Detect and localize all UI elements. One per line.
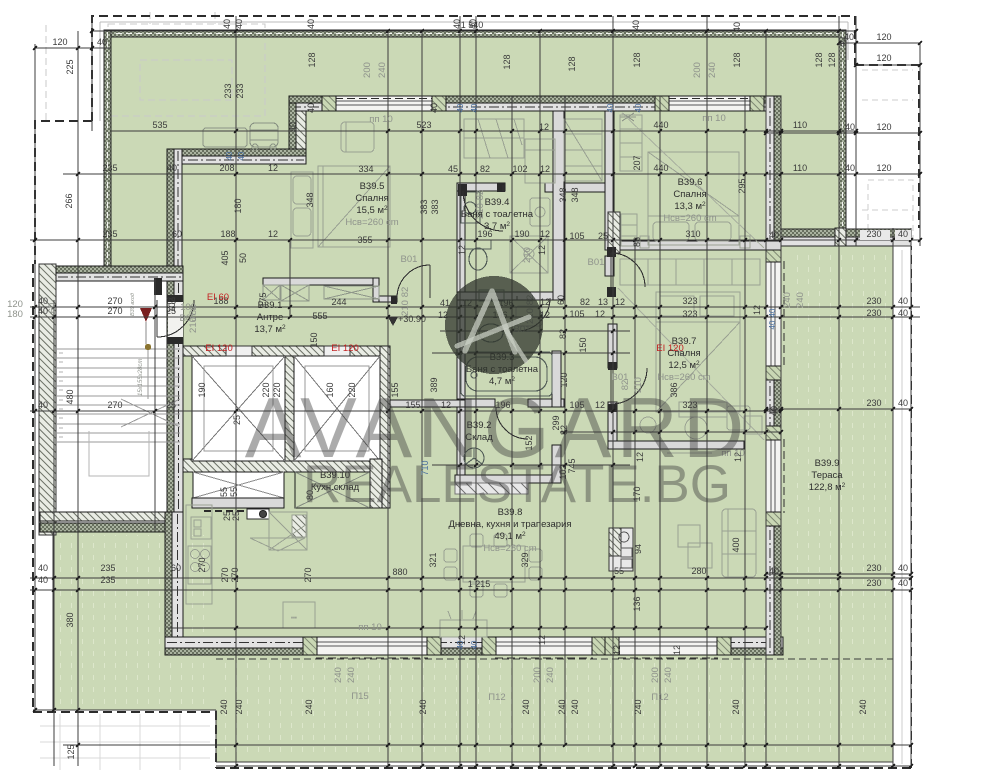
svg-text:40: 40 [898,308,908,318]
svg-text:15,5 м2: 15,5 м2 [356,205,388,217]
svg-text:40: 40 [288,122,298,132]
svg-text:40: 40 [225,151,234,160]
svg-text:Нсв=260 cm: Нсв=260 cm [483,543,536,554]
svg-text:Антре: Антре [257,312,284,323]
svg-text:40: 40 [468,19,478,29]
svg-text:12: 12 [540,229,550,239]
svg-text:40: 40 [456,103,465,112]
svg-text:240: 240 [570,699,580,714]
svg-text:40: 40 [732,22,742,32]
svg-text:120: 120 [876,163,891,173]
svg-text:25: 25 [232,415,242,425]
svg-text:233: 233 [223,83,233,98]
svg-text:295: 295 [737,178,747,193]
svg-text:348: 348 [558,187,568,202]
svg-text:244: 244 [331,297,346,307]
svg-text:40: 40 [452,19,462,29]
svg-text:B39.4: B39.4 [485,197,510,208]
svg-text:12: 12 [672,645,682,655]
svg-text:240: 240 [557,699,567,714]
svg-text:пп 10: пп 10 [358,622,382,633]
svg-text:240: 240 [707,62,718,78]
svg-text:240: 240 [377,62,388,78]
svg-text:15x155x28cm: 15x155x28cm [138,359,144,396]
svg-text:82: 82 [480,164,490,174]
svg-text:40: 40 [429,103,439,113]
svg-text:40: 40 [38,575,48,585]
svg-text:440: 440 [653,120,668,130]
svg-text:пп 10: пп 10 [369,114,393,125]
svg-text:1 215: 1 215 [468,579,491,589]
svg-text:12: 12 [595,309,605,319]
svg-text:240: 240 [418,699,428,714]
svg-text:12: 12 [752,305,762,315]
svg-text:55: 55 [614,566,624,576]
svg-text:383: 383 [430,199,440,214]
svg-text:240: 240 [545,667,556,683]
svg-text:П12: П12 [488,692,505,703]
svg-text:400: 400 [731,537,741,552]
svg-text:Нсв=260 cm: Нсв=260 cm [663,213,716,224]
svg-text:82: 82 [400,287,411,298]
svg-text:82: 82 [580,297,590,307]
svg-text:233: 233 [235,83,245,98]
svg-text:270: 270 [230,567,240,582]
svg-text:110: 110 [793,120,807,130]
svg-text:13,3 м2: 13,3 м2 [674,201,706,213]
svg-text:383: 383 [419,199,429,214]
svg-text:200: 200 [650,667,661,683]
svg-text:270: 270 [220,567,230,582]
svg-text:40: 40 [237,151,246,160]
svg-text:270: 270 [303,567,313,582]
svg-text:230: 230 [866,308,881,318]
svg-text:40: 40 [631,20,641,30]
svg-text:40: 40 [306,103,316,113]
svg-text:Спалня: Спалня [673,189,706,200]
svg-text:12: 12 [540,297,550,307]
svg-text:Спалня: Спалня [667,348,700,359]
svg-text:25: 25 [166,400,176,410]
svg-text:128: 128 [307,52,317,67]
svg-text:188: 188 [220,229,235,239]
svg-text:EI 120: EI 120 [331,343,358,354]
svg-text:40: 40 [634,103,643,112]
svg-text:329: 329 [520,552,530,567]
svg-text:12: 12 [268,163,278,173]
svg-text:B39 вход: B39 вход [130,293,136,316]
svg-text:40: 40 [845,163,855,173]
svg-text:40: 40 [167,163,177,173]
svg-text:207: 207 [632,155,642,170]
svg-text:210: 210 [400,300,411,316]
svg-text:380: 380 [65,612,75,627]
svg-text:40: 40 [837,37,847,47]
svg-text:EI 60: EI 60 [207,292,229,303]
svg-text:40: 40 [898,229,908,239]
svg-text:25: 25 [598,231,608,241]
svg-text:323: 323 [682,309,697,319]
svg-text:55: 55 [219,487,229,497]
svg-text:266: 266 [64,193,74,208]
svg-text:240: 240 [521,699,531,714]
svg-text:210: 210 [522,247,533,263]
svg-text:405: 405 [220,250,230,265]
svg-text:190: 190 [514,229,529,239]
svg-text:40: 40 [606,103,615,112]
svg-text:334: 334 [358,164,373,174]
svg-text:200: 200 [692,62,703,78]
svg-text:40: 40 [898,398,908,408]
svg-text:12,5 м2: 12,5 м2 [668,360,700,372]
svg-text:240: 240 [795,292,806,308]
svg-text:230: 230 [866,578,881,588]
svg-text:B39.1: B39.1 [258,300,283,311]
svg-text:40: 40 [470,640,479,649]
svg-text:40: 40 [845,122,855,132]
svg-text:240: 240 [219,699,229,714]
svg-text:40: 40 [768,308,777,317]
svg-text:40: 40 [898,563,908,573]
svg-text:240: 240 [731,699,741,714]
svg-text:40: 40 [38,563,48,573]
svg-text:B39.6: B39.6 [678,177,703,188]
svg-text:B39.7: B39.7 [672,336,697,347]
svg-text:348: 348 [570,187,580,202]
svg-text:25: 25 [231,511,241,521]
svg-text:12: 12 [612,645,622,655]
svg-text:12: 12 [268,229,278,239]
svg-text:55: 55 [229,487,239,497]
svg-text:40: 40 [470,103,479,112]
svg-text:60: 60 [556,295,566,305]
svg-text:280: 280 [691,566,706,576]
svg-text:Баня с тоалетна: Баня с тоалетна [461,209,534,220]
svg-text:В05: В05 [180,313,197,324]
svg-text:В01: В01 [401,254,418,265]
svg-text:40: 40 [769,406,779,416]
svg-text:Спалня: Спалня [355,193,388,204]
svg-text:240: 240 [304,699,314,714]
svg-text:150: 150 [309,332,319,347]
svg-text:230: 230 [866,296,881,306]
svg-text:Дневна, кухня и трапезария: Дневна, кухня и трапезария [448,519,571,530]
svg-text:235: 235 [100,575,115,585]
svg-text:EI 120: EI 120 [205,343,232,354]
svg-text:240: 240 [663,667,674,683]
svg-text:230: 230 [866,398,881,408]
svg-text:50: 50 [238,253,248,263]
svg-text:40: 40 [222,19,232,29]
svg-text:60: 60 [172,229,182,239]
svg-text:200: 200 [362,62,373,78]
svg-text:523: 523 [416,120,431,130]
svg-text:40: 40 [898,296,908,306]
svg-text:40: 40 [769,566,779,576]
svg-text:323: 323 [682,296,697,306]
svg-text:230: 230 [866,229,881,239]
svg-text:60: 60 [47,303,58,314]
svg-text:440: 440 [653,163,668,173]
svg-text:270: 270 [107,296,122,306]
svg-text:110: 110 [793,163,807,173]
svg-text:41: 41 [440,298,450,308]
svg-text:235: 235 [102,163,117,173]
svg-text:B39.9: B39.9 [815,458,840,469]
svg-text:120: 120 [876,122,891,132]
svg-text:122,8 м2: 122,8 м2 [809,482,846,494]
svg-text:355: 355 [357,235,372,245]
svg-text:348: 348 [305,192,315,207]
svg-text:94: 94 [633,544,643,554]
svg-text:12: 12 [457,245,467,255]
svg-text:40: 40 [898,578,908,588]
svg-text:270: 270 [107,400,122,410]
svg-text:13: 13 [598,297,608,307]
svg-text:12: 12 [540,164,550,174]
svg-text:225: 225 [65,59,75,74]
svg-text:128: 128 [632,52,642,67]
svg-text:235: 235 [102,229,117,239]
svg-text:190: 190 [197,382,207,397]
svg-text:пп 10: пп 10 [702,113,726,124]
svg-text:12: 12 [537,635,547,645]
svg-text:270: 270 [197,557,207,572]
svg-text:150: 150 [578,337,588,352]
svg-text:12: 12 [539,122,549,132]
svg-text:102: 102 [512,164,527,174]
svg-text:102: 102 [167,297,177,312]
svg-text:40: 40 [768,320,777,329]
svg-text:82: 82 [558,329,568,339]
svg-text:240: 240 [234,699,244,714]
svg-text:Тераса: Тераса [811,470,843,481]
svg-text:235: 235 [100,563,115,573]
svg-text:240: 240 [346,667,357,683]
svg-text:60: 60 [171,563,181,573]
svg-text:40: 40 [38,400,48,410]
svg-text:128: 128 [814,52,824,67]
svg-text:102: 102 [180,302,196,313]
svg-text:180: 180 [7,309,23,320]
svg-text:12: 12 [537,245,547,255]
svg-text:49,1 м2: 49,1 м2 [494,531,526,543]
svg-text:...: ... [291,613,297,620]
svg-text:120: 120 [876,32,891,42]
svg-text:П12: П12 [651,692,668,703]
svg-text:40: 40 [456,640,465,649]
svg-text:105: 105 [569,309,584,319]
svg-text:120: 120 [52,37,67,47]
svg-text:12: 12 [615,297,625,307]
svg-text:13,7 м2: 13,7 м2 [254,324,286,336]
svg-text:В01: В01 [588,257,605,268]
svg-text:Нсв=260 cm: Нсв=260 cm [345,217,398,228]
svg-text:180: 180 [233,198,243,213]
svg-text:310: 310 [685,229,700,239]
svg-text:П15: П15 [351,691,368,702]
svg-text:105: 105 [569,231,584,241]
svg-text:240: 240 [782,292,793,308]
svg-text:40: 40 [234,19,244,29]
svg-text:240: 240 [333,667,344,683]
svg-text:40: 40 [769,230,779,240]
svg-text:208: 208 [219,163,234,173]
svg-text:40: 40 [97,37,107,47]
svg-text:128: 128 [732,52,742,67]
svg-text:B39.5: B39.5 [360,181,385,192]
svg-text:240: 240 [858,699,868,714]
svg-text:120: 120 [876,53,891,63]
svg-text:88: 88 [632,237,642,247]
svg-text:270: 270 [107,306,122,316]
svg-text:125: 125 [66,744,76,759]
svg-text:40: 40 [306,19,316,29]
svg-text:230: 230 [866,563,881,573]
svg-text:321: 321 [428,552,438,567]
svg-text:880: 880 [392,567,407,577]
svg-text:555: 555 [312,311,327,321]
svg-text:240: 240 [633,699,643,714]
svg-text:REALESTATE.BG: REALESTATE.BG [303,455,731,514]
svg-text:128: 128 [502,54,512,69]
svg-text:128: 128 [827,52,837,67]
svg-text:480: 480 [65,389,75,404]
svg-text:128: 128 [567,56,577,71]
svg-text:535: 535 [152,120,167,130]
svg-text:136: 136 [632,596,642,611]
svg-text:200: 200 [532,667,543,683]
svg-text:45: 45 [448,164,458,174]
